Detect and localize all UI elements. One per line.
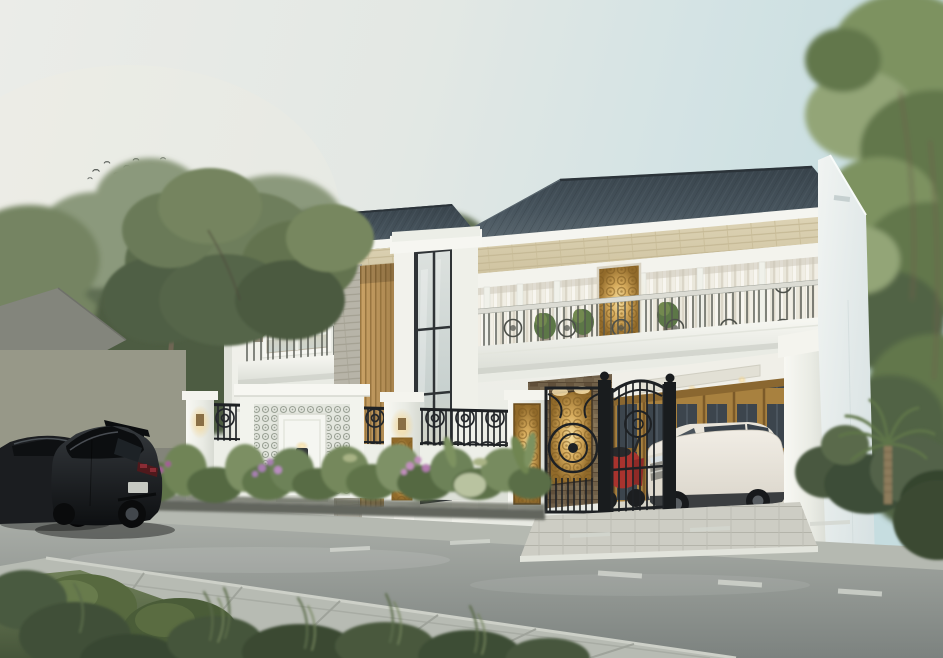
lamp-fixture: [196, 414, 204, 426]
license-plate: [128, 482, 148, 493]
gate-right-post: [664, 382, 676, 516]
lamp-fixture: [398, 418, 406, 430]
architectural-rendering: [0, 0, 943, 658]
gate-center-post: [598, 380, 611, 516]
rendering-canvas: [0, 0, 943, 658]
entry-cornice: [234, 384, 370, 396]
